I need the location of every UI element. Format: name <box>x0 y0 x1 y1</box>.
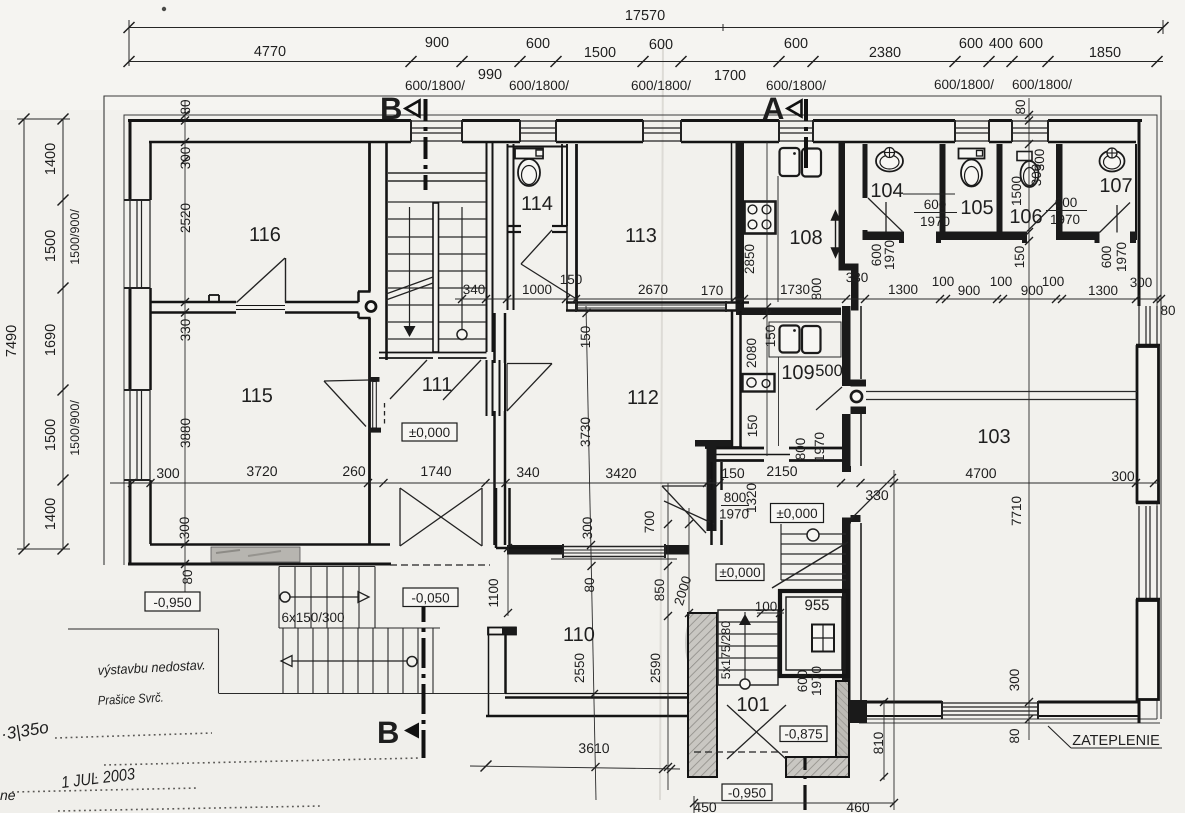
svg-text:2080: 2080 <box>744 338 759 368</box>
svg-text:106: 106 <box>1009 206 1042 228</box>
svg-text:2850: 2850 <box>742 244 757 274</box>
svg-text:1000: 1000 <box>522 282 552 297</box>
svg-text:1690: 1690 <box>43 324 59 356</box>
svg-text:-0,875: -0,875 <box>784 727 822 742</box>
svg-text:600/1800/: 600/1800/ <box>405 78 465 93</box>
svg-text:ZATEPLENIE: ZATEPLENIE <box>1072 733 1160 749</box>
svg-text:340: 340 <box>463 282 486 297</box>
svg-text:2550: 2550 <box>572 653 587 683</box>
svg-text:A: A <box>762 91 784 126</box>
svg-text:1300: 1300 <box>1088 283 1118 298</box>
svg-text:-0,950: -0,950 <box>728 786 766 801</box>
svg-text:1500: 1500 <box>584 45 616 61</box>
svg-text:800: 800 <box>724 490 747 505</box>
svg-text:600: 600 <box>1019 36 1043 52</box>
svg-text:±0,000: ±0,000 <box>719 565 760 580</box>
svg-text:600: 600 <box>784 36 808 52</box>
svg-text:600/1800/: 600/1800/ <box>509 78 569 93</box>
svg-text:-0,050: -0,050 <box>411 591 449 606</box>
svg-text:104: 104 <box>870 180 903 202</box>
svg-text:955: 955 <box>804 597 829 614</box>
svg-text:3720: 3720 <box>246 463 277 479</box>
svg-text:80: 80 <box>582 577 597 592</box>
svg-text:260: 260 <box>342 463 366 479</box>
svg-text:450: 450 <box>693 799 717 813</box>
svg-text:300: 300 <box>1029 164 1044 187</box>
svg-text:300: 300 <box>580 517 595 540</box>
svg-text:800: 800 <box>809 278 824 301</box>
svg-text:600: 600 <box>526 36 550 52</box>
svg-text:5x175/280: 5x175/280 <box>719 621 733 679</box>
svg-text:600: 600 <box>959 36 983 52</box>
svg-text:100: 100 <box>932 274 955 289</box>
svg-text:1970: 1970 <box>809 666 824 696</box>
svg-text:330: 330 <box>846 270 869 285</box>
svg-text:900: 900 <box>1021 283 1044 298</box>
svg-text:1400: 1400 <box>43 143 59 175</box>
svg-text:330: 330 <box>865 487 889 503</box>
svg-text:1500: 1500 <box>43 419 59 451</box>
svg-text:109: 109 <box>781 362 814 384</box>
svg-text:900: 900 <box>425 35 449 51</box>
svg-text:80: 80 <box>1007 728 1022 743</box>
svg-text:1300: 1300 <box>888 282 918 297</box>
svg-text:100: 100 <box>1042 274 1065 289</box>
svg-text:1500/900/: 1500/900/ <box>68 400 82 456</box>
svg-text:103: 103 <box>977 426 1010 448</box>
svg-text:150: 150 <box>1012 246 1027 269</box>
svg-text:1730: 1730 <box>780 282 810 297</box>
svg-text:2150: 2150 <box>766 463 797 479</box>
svg-text:1400: 1400 <box>43 498 59 530</box>
svg-text:1970: 1970 <box>1050 212 1080 227</box>
svg-text:850: 850 <box>652 579 667 602</box>
svg-text:B: B <box>377 715 399 750</box>
svg-text:460: 460 <box>846 799 870 813</box>
svg-text:400: 400 <box>989 36 1013 52</box>
svg-text:600/1800/: 600/1800/ <box>1012 77 1072 92</box>
svg-text:600/1800/: 600/1800/ <box>934 77 994 92</box>
svg-text:±0,000: ±0,000 <box>409 425 450 440</box>
svg-text:990: 990 <box>478 67 502 83</box>
svg-text:150: 150 <box>721 465 745 481</box>
svg-text:300: 300 <box>177 517 192 540</box>
svg-text:2380: 2380 <box>869 45 901 61</box>
svg-text:107: 107 <box>1099 175 1132 197</box>
svg-text:1970: 1970 <box>719 507 749 522</box>
svg-text:110: 110 <box>563 624 595 646</box>
svg-text:2520: 2520 <box>178 203 193 233</box>
svg-text:1500: 1500 <box>1009 176 1024 206</box>
svg-text:-0,950: -0,950 <box>153 595 191 610</box>
svg-text:700: 700 <box>642 511 657 534</box>
svg-text:300: 300 <box>1130 275 1153 290</box>
svg-text:6x150/300: 6x150/300 <box>281 610 344 625</box>
svg-text:150: 150 <box>578 326 593 349</box>
svg-text:100: 100 <box>990 274 1013 289</box>
svg-text:340: 340 <box>516 464 540 480</box>
svg-text:114: 114 <box>521 193 553 215</box>
svg-text:7490: 7490 <box>4 325 20 357</box>
svg-text:1500: 1500 <box>43 230 59 262</box>
svg-text:150: 150 <box>560 272 583 287</box>
svg-text:80: 80 <box>1013 99 1028 114</box>
svg-text:600: 600 <box>649 37 673 53</box>
svg-text:3730: 3730 <box>578 417 593 447</box>
svg-text:101: 101 <box>736 694 769 716</box>
svg-text:1740: 1740 <box>420 463 451 479</box>
svg-text:80: 80 <box>1160 303 1175 318</box>
svg-text:1970: 1970 <box>1114 242 1129 272</box>
svg-text:3610: 3610 <box>578 740 609 756</box>
svg-text:810: 810 <box>871 732 886 755</box>
svg-text:80: 80 <box>178 99 193 114</box>
svg-text:108: 108 <box>789 227 822 249</box>
svg-text:1700: 1700 <box>714 68 746 84</box>
svg-text:1970: 1970 <box>812 432 827 462</box>
svg-text:150: 150 <box>763 325 778 348</box>
svg-text:170: 170 <box>701 283 724 298</box>
svg-text:600/1800/: 600/1800/ <box>631 78 691 93</box>
svg-text:4700: 4700 <box>965 465 996 481</box>
svg-text:105: 105 <box>960 197 993 219</box>
svg-text:±0,000: ±0,000 <box>776 506 817 521</box>
svg-text:330: 330 <box>178 319 193 342</box>
svg-text:1100: 1100 <box>486 578 501 607</box>
svg-text:800: 800 <box>793 438 808 461</box>
svg-text:ne: ne <box>0 787 16 803</box>
svg-text:100: 100 <box>755 599 778 614</box>
svg-text:900: 900 <box>958 283 981 298</box>
svg-text:600: 600 <box>795 670 810 693</box>
svg-text:1850: 1850 <box>1089 45 1121 61</box>
svg-text:3420: 3420 <box>605 465 636 481</box>
svg-text:116: 116 <box>249 224 281 246</box>
svg-text:600: 600 <box>1055 195 1078 210</box>
svg-text:1500/900/: 1500/900/ <box>68 209 82 265</box>
svg-text:113: 113 <box>625 225 657 247</box>
svg-text:111: 111 <box>422 374 452 396</box>
svg-text:1970: 1970 <box>920 214 950 229</box>
svg-text:115: 115 <box>241 385 273 407</box>
svg-text:3880: 3880 <box>178 418 193 448</box>
svg-text:300: 300 <box>1007 669 1022 692</box>
svg-text:17570: 17570 <box>625 8 665 24</box>
svg-text:1970: 1970 <box>882 240 897 270</box>
svg-text:300: 300 <box>178 147 193 170</box>
svg-text:112: 112 <box>627 387 659 409</box>
svg-text:300: 300 <box>1111 468 1135 484</box>
svg-text:500: 500 <box>815 362 843 380</box>
svg-text:2590: 2590 <box>648 653 663 683</box>
svg-text:4770: 4770 <box>254 44 286 60</box>
svg-text:600: 600 <box>924 197 947 212</box>
svg-text:2670: 2670 <box>638 282 668 297</box>
svg-text:150: 150 <box>745 415 760 438</box>
svg-text:300: 300 <box>156 465 180 481</box>
svg-text:600: 600 <box>1099 246 1114 269</box>
svg-text:7710: 7710 <box>1009 496 1024 526</box>
svg-text:B: B <box>380 91 402 126</box>
svg-text:80: 80 <box>180 569 195 584</box>
